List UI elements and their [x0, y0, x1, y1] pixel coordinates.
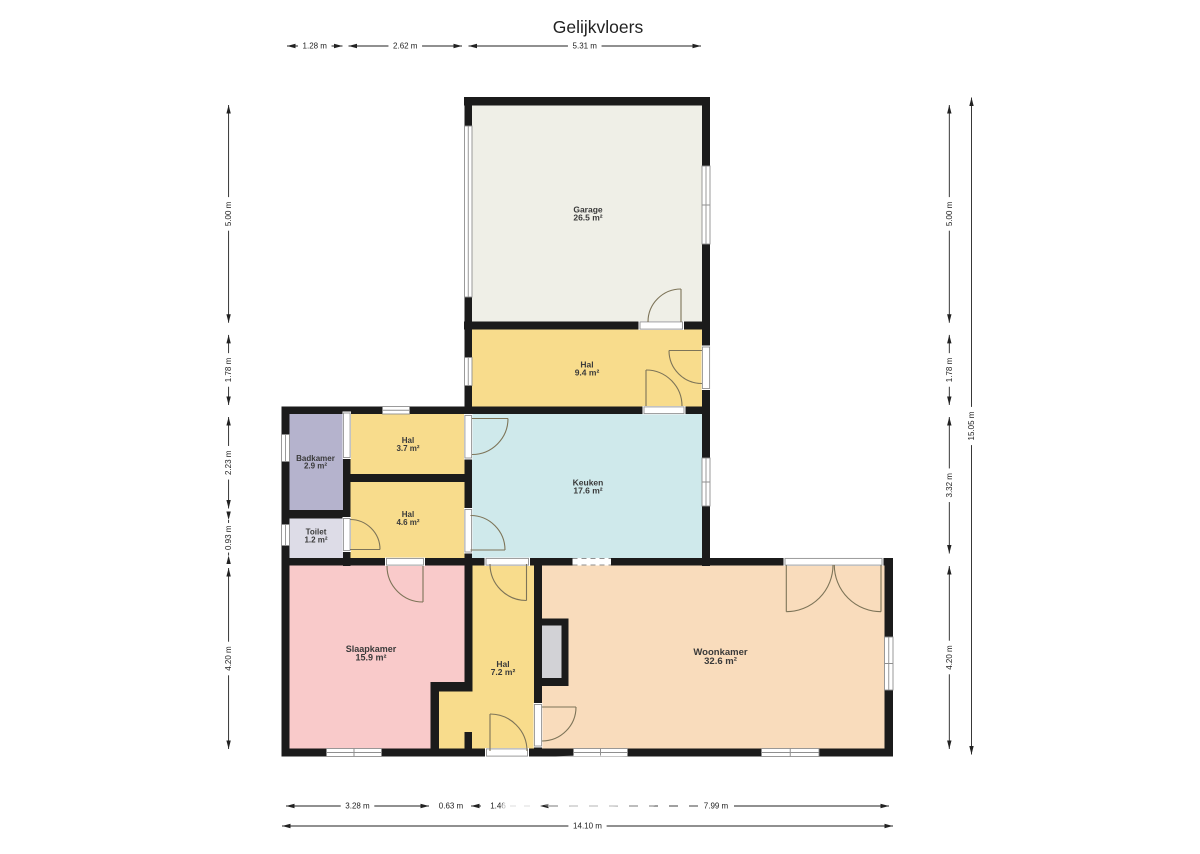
svg-text:1.78 m: 1.78 m	[945, 357, 954, 382]
svg-text:14.10 m: 14.10 m	[573, 822, 602, 831]
svg-text:4.20 m: 4.20 m	[224, 646, 233, 671]
svg-text:3.7 m²: 3.7 m²	[396, 444, 419, 453]
svg-text:32.6 m²: 32.6 m²	[704, 656, 737, 667]
svg-text:2.9 m²: 2.9 m²	[304, 462, 327, 471]
svg-text:15.05 m: 15.05 m	[967, 411, 976, 440]
svg-text:3.32 m: 3.32 m	[945, 473, 954, 498]
svg-text:0.63 m: 0.63 m	[439, 802, 464, 811]
svg-text:9.4 m²: 9.4 m²	[575, 368, 600, 378]
svg-text:4.20 m: 4.20 m	[945, 645, 954, 670]
svg-text:7.2 m²: 7.2 m²	[491, 667, 516, 677]
svg-text:5.00 m: 5.00 m	[224, 201, 233, 226]
svg-text:26.5 m²: 26.5 m²	[573, 213, 602, 223]
svg-text:15.9 m²: 15.9 m²	[355, 653, 386, 663]
svg-text:17.6 m²: 17.6 m²	[573, 486, 602, 496]
svg-text:5.31 m: 5.31 m	[573, 42, 598, 51]
svg-text:2.62 m: 2.62 m	[393, 42, 418, 51]
svg-text:0.93 m: 0.93 m	[224, 525, 233, 550]
svg-text:1.78 m: 1.78 m	[224, 357, 233, 382]
svg-text:5.00 m: 5.00 m	[945, 201, 954, 226]
svg-text:4.6 m²: 4.6 m²	[396, 518, 419, 527]
svg-text:1.28 m: 1.28 m	[303, 42, 328, 51]
svg-text:1.2 m²: 1.2 m²	[304, 535, 327, 544]
svg-text:2.23 m: 2.23 m	[224, 450, 233, 475]
svg-text:Gelijkvloers: Gelijkvloers	[553, 17, 644, 37]
svg-text:3.28 m: 3.28 m	[345, 802, 370, 811]
svg-text:7.99 m: 7.99 m	[704, 802, 729, 811]
